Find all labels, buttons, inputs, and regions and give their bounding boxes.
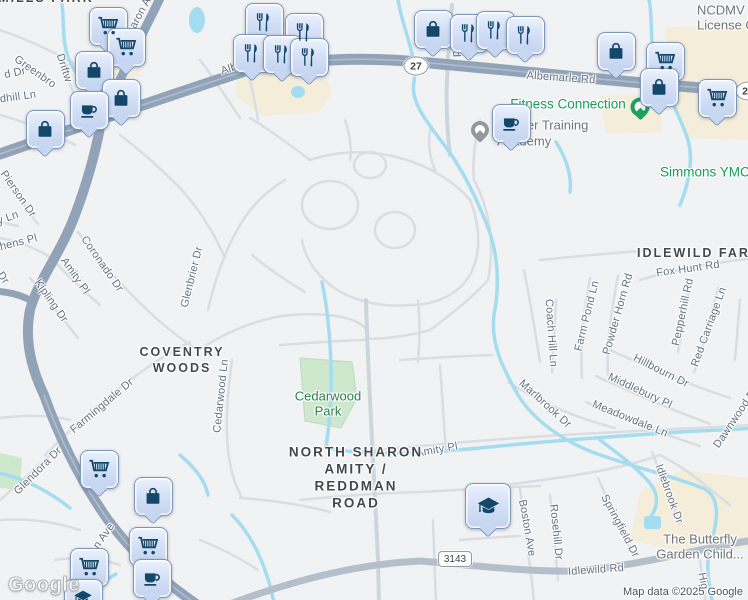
coffee-cup-marker[interactable] [70,91,109,130]
map-attribution: Map data ©2025 Google [623,586,743,598]
graduation-cap-marker[interactable] [465,483,511,529]
coffee-cup-icon [78,99,100,121]
shopping-cart-icon [97,15,119,37]
shopping-bag-icon [110,87,132,109]
neighborhood-label-north-sharon: NORTH SHARON [289,445,423,460]
coffee-cup-icon [141,567,163,589]
restaurant-icon [241,42,263,64]
restaurant-icon [484,19,506,41]
shopping-bag-marker[interactable] [597,32,636,71]
poi-label-ier-training[interactable]: ier Training [524,118,588,133]
restaurant-icon [271,43,293,65]
shopping-bag-icon [83,59,105,81]
graduation-cap-icon [475,493,502,520]
google-logo[interactable]: Google [8,574,80,597]
shopping-bag-marker[interactable] [26,110,65,149]
poi-label-cedarwood[interactable]: Cedarwood [295,389,362,404]
shopping-cart-icon [78,556,100,578]
restaurant-icon [458,22,480,44]
shopping-bag-marker[interactable] [134,477,173,516]
poi-label-simmons-ymca[interactable]: Simmons YMCA [660,165,748,180]
neighborhood-label-woods: WOODS [153,361,212,375]
shopping-cart-icon [115,36,137,58]
route-shield-3143: 3143 [438,551,472,567]
neighborhood-label-reddman: REDDMAN [315,479,398,494]
neighborhood-label-idlewild-farms: IDLEWILD FARMS [637,246,748,260]
poi-label-garden-child[interactable]: Garden Child... [656,547,743,562]
shopping-bag-icon [142,485,164,507]
shopping-cart-marker[interactable] [80,450,119,489]
neighborhood-label-amity: AMITY / [324,462,387,477]
coffee-cup-marker[interactable] [133,559,172,598]
shopping-bag-icon [34,118,56,140]
coffee-cup-icon [500,112,522,134]
neighborhood-label-road: ROAD [332,496,380,511]
neighborhood-label-mills-park: MILLS PARK [0,0,94,5]
restaurant-icon [293,21,315,43]
poi-label-park[interactable]: Park [315,404,342,419]
shopping-cart-icon [137,535,159,557]
poi-label-license-o[interactable]: License O [697,18,748,33]
poi-label-the-butterfly[interactable]: The Butterfly [663,532,737,547]
restaurant-icon [514,24,536,46]
shopping-bag-marker[interactable] [414,10,453,49]
shopping-bag-marker[interactable] [640,68,679,107]
graduation-cap-icon [72,587,94,600]
poi-label-ncdmv[interactable]: NCDMV [697,3,745,18]
shopping-bag-icon [648,76,670,98]
map-canvas[interactable]: d DrGreenbroDriftwharon Adhill LnPierson… [0,0,748,600]
shopping-cart-marker[interactable] [698,79,737,118]
shopping-bag-icon [422,18,444,40]
restaurant-icon [298,46,320,68]
shopping-bag-icon [605,40,627,62]
route-shield-27: 27 [404,57,429,76]
shopping-cart-icon [88,458,110,480]
restaurant-marker[interactable] [506,16,545,55]
neighborhood-label-coventry: COVENTRY [140,345,225,359]
shopping-cart-icon [706,87,728,109]
restaurant-marker[interactable] [290,38,329,77]
coffee-cup-marker[interactable] [492,104,531,143]
shopping-cart-icon [654,50,676,72]
restaurant-icon [253,11,275,33]
poi-dot-gray[interactable] [471,121,489,139]
